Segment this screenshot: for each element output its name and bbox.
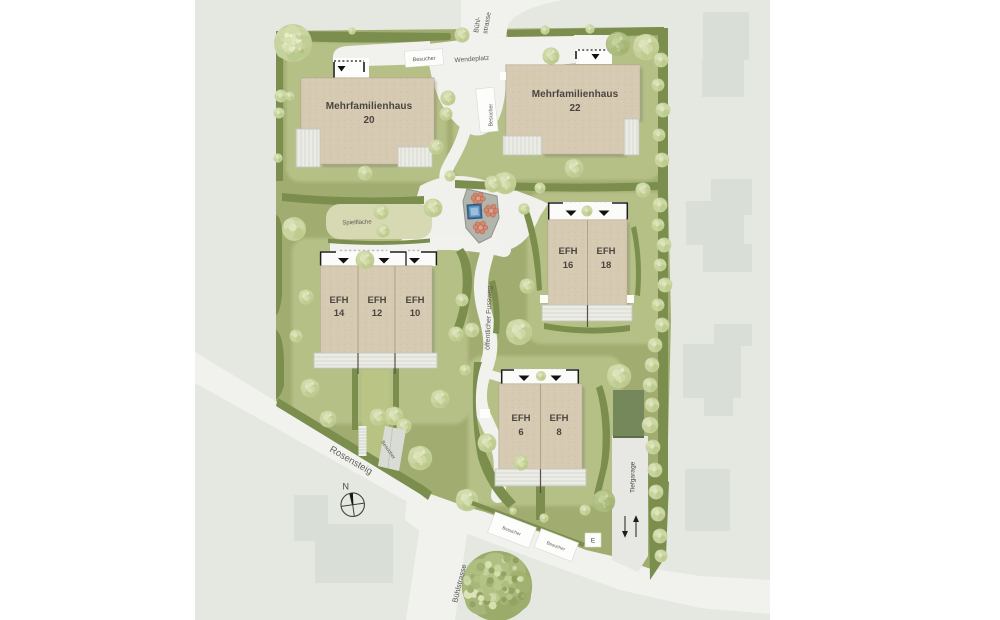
svg-text:EFH: EFH (512, 413, 531, 424)
svg-text:14: 14 (334, 308, 345, 319)
svg-text:E: E (591, 538, 596, 545)
svg-text:EFH: EFH (550, 413, 569, 424)
svg-text:6: 6 (518, 427, 523, 438)
svg-text:EFH: EFH (406, 295, 425, 306)
svg-text:EFH: EFH (559, 246, 578, 257)
svg-text:18: 18 (601, 260, 612, 271)
svg-text:20: 20 (363, 115, 375, 126)
svg-text:10: 10 (410, 308, 421, 319)
svg-text:EFH: EFH (330, 295, 349, 306)
svg-text:12: 12 (372, 308, 383, 319)
svg-text:EFH: EFH (368, 295, 387, 306)
svg-text:8: 8 (556, 427, 561, 438)
svg-text:Besucher: Besucher (488, 104, 494, 127)
svg-text:Mehrfamilienhaus: Mehrfamilienhaus (532, 89, 619, 100)
svg-text:22: 22 (569, 103, 581, 114)
svg-text:N: N (342, 482, 349, 492)
svg-text:Tiefgarage: Tiefgarage (630, 461, 637, 493)
svg-text:16: 16 (563, 260, 574, 271)
svg-text:Spielfläche: Spielfläche (342, 220, 372, 227)
svg-text:EFH: EFH (597, 246, 616, 257)
svg-text:Mehrfamilienhaus: Mehrfamilienhaus (326, 101, 413, 112)
